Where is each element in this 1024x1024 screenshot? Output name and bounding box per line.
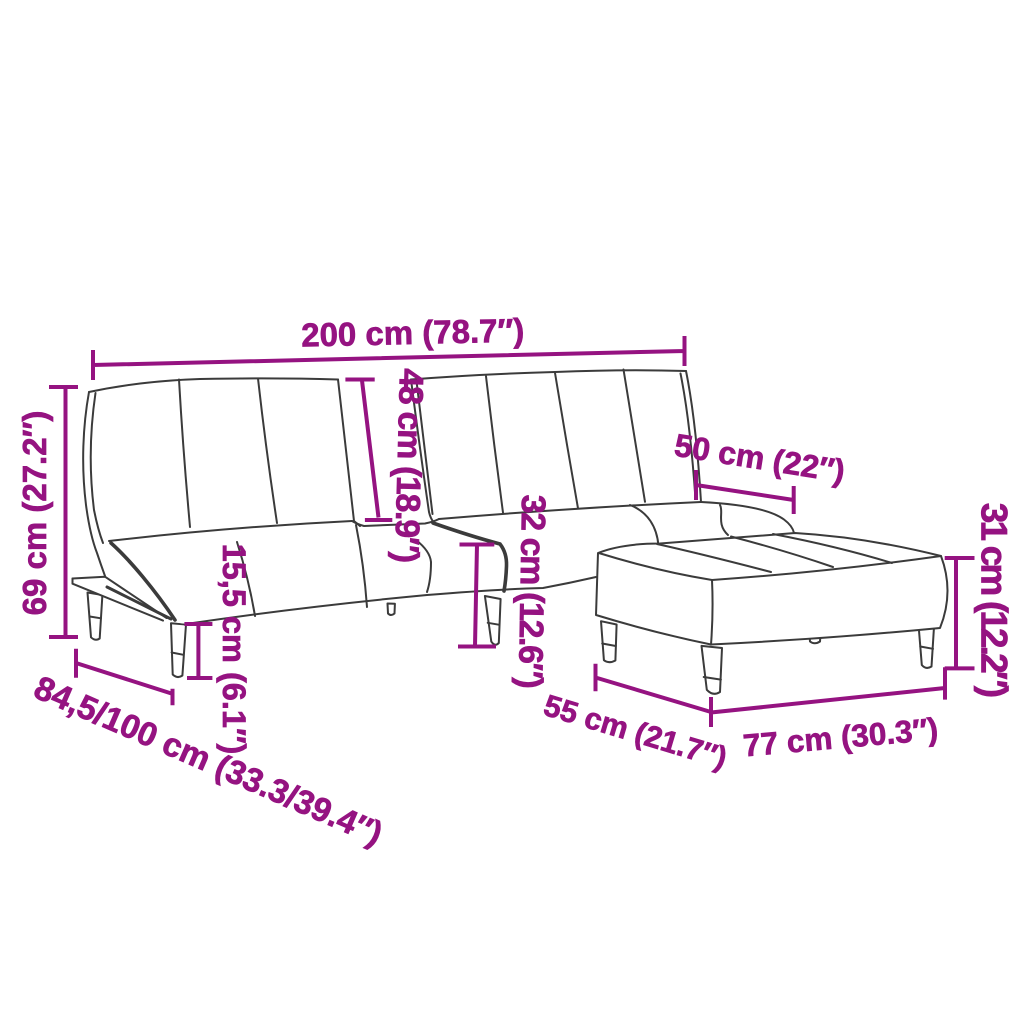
svg-text:48 cm (18.9″): 48 cm (18.9″) — [387, 368, 430, 562]
svg-text:32 cm (12.6″): 32 cm (12.6″) — [511, 494, 552, 687]
svg-text:69 cm (27.2″): 69 cm (27.2″) — [16, 411, 53, 616]
svg-text:15,5 cm (6.1″): 15,5 cm (6.1″) — [216, 544, 252, 755]
svg-text:200 cm (78.7″): 200 cm (78.7″) — [301, 311, 525, 353]
svg-text:31 cm (12.2″): 31 cm (12.2″) — [974, 503, 1015, 697]
